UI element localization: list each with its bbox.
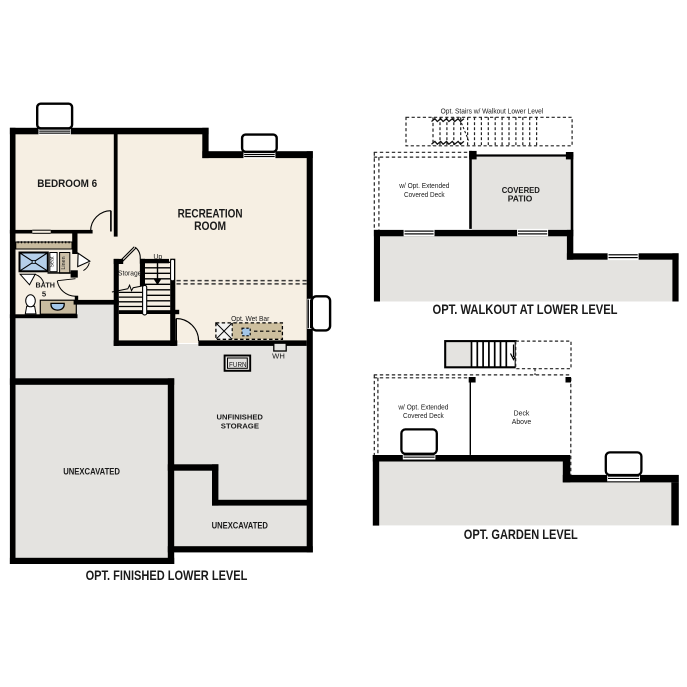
svg-text:w/ Opt. Extended: w/ Opt. Extended bbox=[398, 183, 449, 190]
svg-text:OPT. FINISHED LOWER LEVEL: OPT. FINISHED LOWER LEVEL bbox=[86, 567, 248, 583]
svg-text:Opt. Stairs w/ Walkout Lower L: Opt. Stairs w/ Walkout Lower Level bbox=[441, 108, 544, 115]
svg-text:STORAGE: STORAGE bbox=[221, 421, 259, 430]
svg-text:OPT. WALKOUT AT LOWER LEVEL: OPT. WALKOUT AT LOWER LEVEL bbox=[433, 301, 618, 317]
svg-text:UNEXCAVATED: UNEXCAVATED bbox=[63, 466, 120, 476]
svg-text:Up: Up bbox=[153, 254, 162, 261]
svg-text:Covered Deck: Covered Deck bbox=[404, 192, 445, 199]
svg-text:UNEXCAVATED: UNEXCAVATED bbox=[212, 521, 269, 531]
svg-text:Opt. Wet Bar: Opt. Wet Bar bbox=[231, 314, 270, 323]
svg-text:Linen: Linen bbox=[61, 256, 67, 269]
svg-text:RECREATION: RECREATION bbox=[178, 209, 243, 221]
svg-text:Covered Deck: Covered Deck bbox=[403, 413, 444, 420]
svg-text:WH: WH bbox=[272, 351, 285, 360]
svg-text:UNFINISHED: UNFINISHED bbox=[217, 413, 264, 422]
svg-text:FURN: FURN bbox=[229, 360, 247, 369]
svg-text:Storage: Storage bbox=[118, 268, 141, 277]
svg-text:Seat: Seat bbox=[50, 256, 56, 268]
svg-text:5: 5 bbox=[42, 289, 47, 298]
svg-text:BATH: BATH bbox=[36, 281, 56, 290]
svg-text:w/ Opt. Extended: w/ Opt. Extended bbox=[397, 405, 448, 412]
svg-text:Above: Above bbox=[512, 419, 532, 426]
svg-text:PATIO: PATIO bbox=[508, 194, 533, 203]
svg-text:OPT. GARDEN LEVEL: OPT. GARDEN LEVEL bbox=[464, 526, 578, 542]
svg-text:BEDROOM 6: BEDROOM 6 bbox=[37, 178, 97, 190]
svg-text:ROOM: ROOM bbox=[194, 221, 226, 233]
svg-text:Deck: Deck bbox=[514, 411, 530, 418]
